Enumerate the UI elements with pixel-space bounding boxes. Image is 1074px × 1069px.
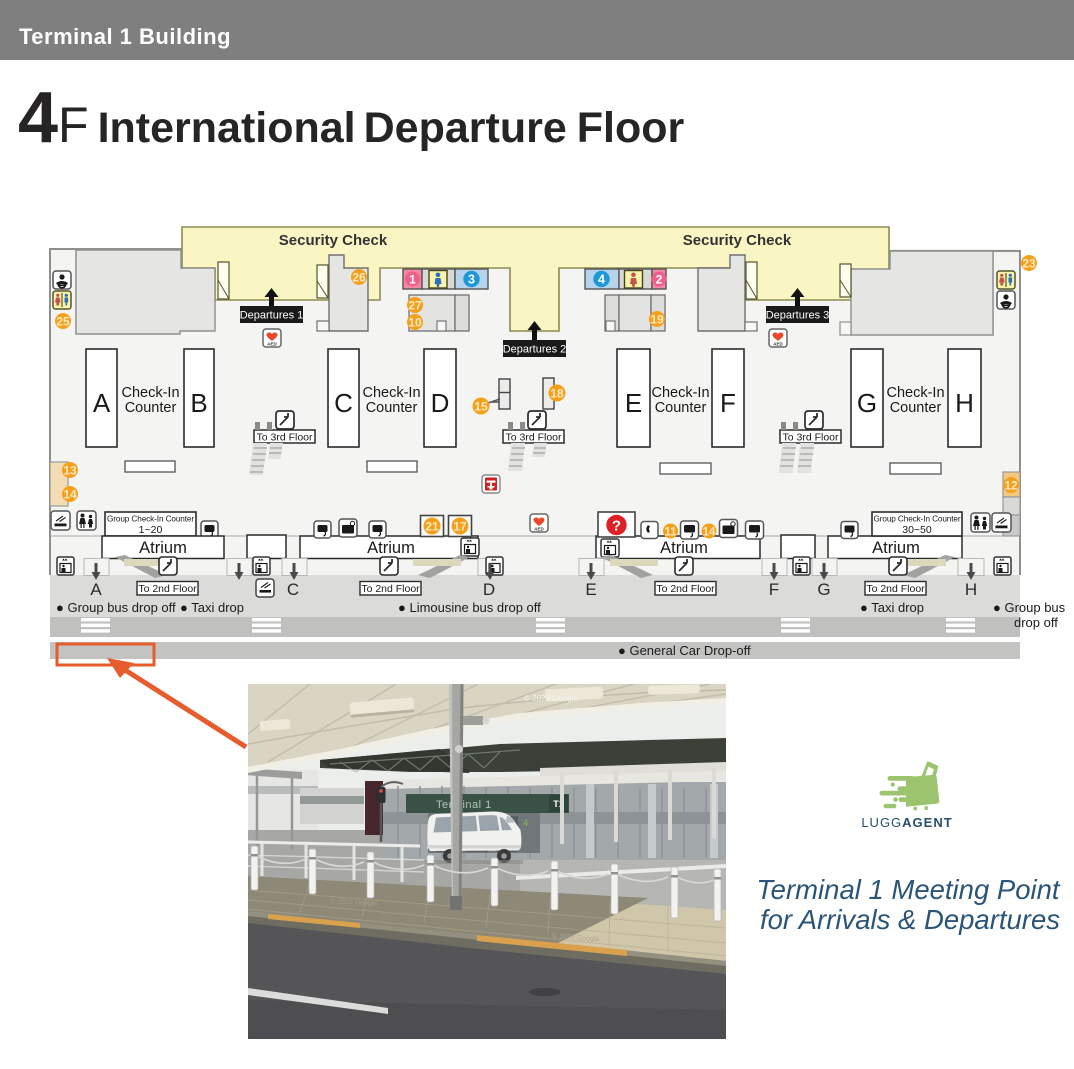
svg-text:G: G: [817, 580, 830, 599]
svg-text:25: 25: [56, 315, 70, 329]
svg-text:2: 2: [656, 273, 663, 287]
svg-text:3: 3: [468, 273, 475, 287]
svg-text:AED: AED: [773, 342, 783, 347]
svg-text:1~20: 1~20: [139, 524, 163, 536]
svg-text:Check-In: Check-In: [651, 385, 709, 401]
svg-text:30~50: 30~50: [902, 524, 932, 536]
svg-text:Departures 2: Departures 2: [503, 344, 567, 356]
svg-text:11: 11: [664, 527, 677, 539]
svg-text:10: 10: [408, 316, 422, 330]
svg-text:drop off: drop off: [1014, 615, 1058, 630]
svg-text:C: C: [287, 580, 299, 599]
svg-text:Departures 1: Departures 1: [240, 310, 304, 322]
svg-text:To 3rd Floor: To 3rd Floor: [505, 432, 562, 444]
svg-text:Security Check: Security Check: [683, 232, 792, 249]
svg-text:LUGGAGENT: LUGGAGENT: [861, 815, 952, 830]
svg-text:Terminal 1 Building: Terminal 1 Building: [19, 24, 231, 49]
svg-text:To 2nd Floor: To 2nd Floor: [656, 583, 715, 595]
svg-text:15: 15: [474, 400, 488, 414]
svg-text:for Arrivals & Departures: for Arrivals & Departures: [760, 904, 1060, 935]
svg-text:Security Check: Security Check: [279, 232, 388, 249]
svg-text:Check-In: Check-In: [362, 385, 420, 401]
svg-text:4: 4: [523, 818, 528, 828]
svg-text:17: 17: [453, 520, 467, 534]
svg-text:Departures 3: Departures 3: [766, 310, 830, 322]
svg-text:Check-In: Check-In: [121, 385, 179, 401]
svg-text:D: D: [431, 388, 450, 418]
svg-text:© 2023 Google: © 2023 Google: [524, 694, 578, 703]
svg-text:Atrium: Atrium: [872, 539, 920, 557]
svg-text:Terminal 1: Terminal 1: [436, 799, 492, 811]
svg-text:E: E: [625, 388, 642, 418]
svg-text:12: 12: [1004, 479, 1018, 493]
svg-text:● Limousine bus drop off: ● Limousine bus drop off: [398, 600, 541, 615]
svg-text:Atrium: Atrium: [367, 539, 415, 557]
svg-text:Counter: Counter: [125, 400, 177, 416]
svg-text:19: 19: [650, 313, 664, 327]
svg-text:18: 18: [550, 387, 564, 401]
svg-text:4: 4: [598, 273, 605, 287]
svg-text:14: 14: [703, 527, 716, 539]
svg-text:● Taxi drop: ● Taxi drop: [180, 600, 244, 615]
svg-text:4FInternationalDepartureFloor: 4FInternationalDepartureFloor: [18, 78, 684, 158]
svg-text:H: H: [955, 388, 974, 418]
svg-text:To 3rd Floor: To 3rd Floor: [782, 432, 839, 444]
svg-text:Check-In: Check-In: [886, 385, 944, 401]
svg-text:23: 23: [1022, 257, 1036, 271]
svg-text:Group Check-In Counter: Group Check-In Counter: [107, 515, 194, 524]
svg-text:Atrium: Atrium: [660, 539, 708, 557]
svg-text:27: 27: [408, 299, 422, 313]
svg-text:Terminal 1 Meeting Point: Terminal 1 Meeting Point: [756, 874, 1061, 905]
svg-text:B: B: [190, 388, 207, 418]
svg-text:E: E: [585, 580, 596, 599]
svg-text:Atrium: Atrium: [139, 539, 187, 557]
svg-text:A: A: [93, 388, 111, 418]
svg-text:1: 1: [409, 273, 416, 287]
svg-text:14: 14: [63, 488, 77, 502]
svg-text:Counter: Counter: [890, 400, 942, 416]
svg-text:● Group bus drop off: ● Group bus drop off: [56, 600, 176, 615]
svg-text:● Taxi drop: ● Taxi drop: [860, 600, 924, 615]
svg-text:To 2nd Floor: To 2nd Floor: [361, 583, 420, 595]
svg-text:H: H: [965, 580, 977, 599]
svg-text:A: A: [90, 580, 102, 599]
svg-text:Group Check-In Counter: Group Check-In Counter: [874, 515, 961, 524]
svg-text:F: F: [769, 580, 779, 599]
svg-text:● Group bus: ● Group bus: [993, 600, 1066, 615]
svg-text:G: G: [857, 388, 877, 418]
svg-text:To 2nd Floor: To 2nd Floor: [866, 583, 925, 595]
svg-text:F: F: [720, 388, 736, 418]
svg-text:21: 21: [425, 520, 439, 534]
svg-text:AED: AED: [534, 527, 544, 532]
svg-text:D: D: [483, 580, 495, 599]
svg-text:13: 13: [63, 464, 77, 478]
svg-text:● General Car Drop-off: ● General Car Drop-off: [618, 643, 751, 658]
svg-text:Counter: Counter: [655, 400, 707, 416]
svg-text:To 2nd Floor: To 2nd Floor: [138, 583, 197, 595]
svg-text:26: 26: [352, 271, 366, 285]
svg-text:To 3rd Floor: To 3rd Floor: [256, 432, 313, 444]
svg-text:Counter: Counter: [366, 400, 418, 416]
svg-text:C: C: [334, 388, 353, 418]
svg-text:?: ?: [612, 518, 621, 535]
svg-text:AED: AED: [267, 342, 277, 347]
